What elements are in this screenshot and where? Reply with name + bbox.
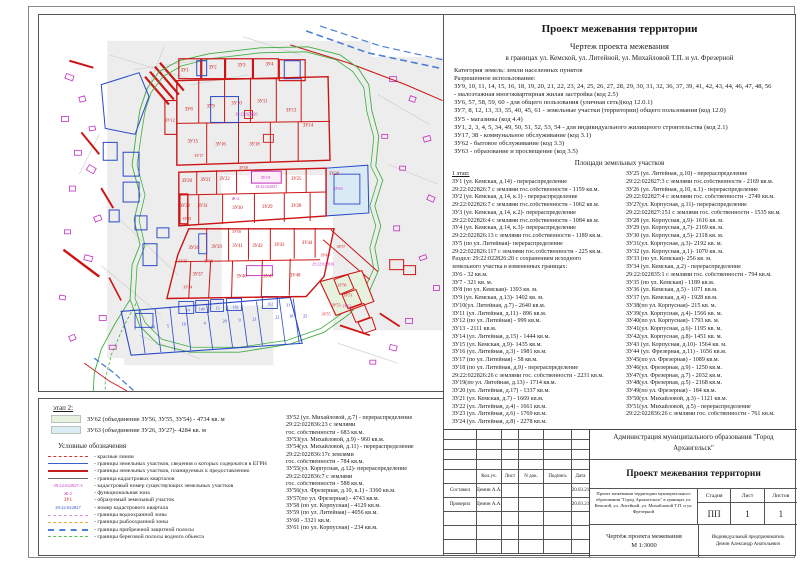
map-frame: ЗУ1ЗУ2ЗУ3ЗУ4ЗУ8ЗУ9ЗУ10ЗУ11ЗУ13ЗУ14ЗУ12ЗУ… xyxy=(38,14,444,392)
map-label: ЗУ51 xyxy=(343,293,352,298)
title-block-cell: Лист xyxy=(502,470,519,483)
legend-line-sample xyxy=(48,522,88,523)
title-block-cell xyxy=(502,484,519,497)
area-line: гос. собственности - 683 кв.м. xyxy=(286,430,442,437)
title-block-cell xyxy=(519,540,544,553)
legend-text-sample: 29:22:022827 xyxy=(55,505,81,510)
permitted-use-line: Разрешенное использование: xyxy=(454,75,789,83)
area-line: ЗУ61 (по ул. Корпусная) - 234 кв.м. xyxy=(286,525,442,532)
text-panel: Проект межевания территории Чертеж проек… xyxy=(443,14,796,556)
stage2-swatch xyxy=(51,426,81,434)
title-block-cell: Демин А.А. xyxy=(477,484,502,497)
title-block-cell xyxy=(544,430,572,439)
legend-label: - образуемый земельный участок xyxy=(94,497,174,503)
doc-title: Проект межевания территории xyxy=(444,23,795,35)
area-line: ЗУ10(ул. Литейная, д.7) - 2640 кв.м. xyxy=(452,303,622,311)
title-block-cell xyxy=(572,540,589,553)
sheet-value: 1 xyxy=(731,503,764,524)
project-title: Проект межевания территории xyxy=(590,460,797,489)
map-label: 16 xyxy=(182,321,186,326)
title-block-cell xyxy=(519,512,544,525)
area-line: ЗУ49(по ул. Фрезерная) - 184 кв.м. xyxy=(626,388,796,396)
stage1-label: 1 этап: xyxy=(452,171,622,179)
title-block-cell: Подпись xyxy=(544,470,572,483)
legend-sample xyxy=(46,478,90,479)
legend-row: 29:22:022827:3- кадастровый номер сущест… xyxy=(46,482,296,489)
area-line: ЗУ59 (по ул. Литейная) - 4056 кв.м. xyxy=(286,510,442,517)
legend-text-sample: 29:22:022827:3 xyxy=(53,483,82,488)
permitted-use-line: ЗУ9, 10, 11, 14, 15, 16, 18, 19, 20, 21,… xyxy=(454,83,789,91)
map-label: ЗУ20 xyxy=(182,179,193,184)
stage2-text: ЗУ63 (объединение ЗУ26, ЗУ27)- 4284 кв. … xyxy=(87,427,206,434)
map-label: ЗУ17 xyxy=(194,153,203,158)
map-drawing: ЗУ1ЗУ2ЗУ3ЗУ4ЗУ8ЗУ9ЗУ10ЗУ11ЗУ13ЗУ14ЗУ12ЗУ… xyxy=(39,15,443,391)
map-label: 18 xyxy=(289,313,293,318)
title-block-cell xyxy=(502,498,519,511)
area-line: ЗУ5 (по ул. Литейная)- перераспределение xyxy=(452,241,622,249)
stage2-label: этап 2: xyxy=(53,404,73,412)
map-label: 20 xyxy=(223,318,227,323)
area-line: ЗУ3 (ул. Кемская, д.14, к.2)- перераспре… xyxy=(452,210,622,218)
title-block-cell: N док. xyxy=(519,470,544,483)
map-label: ЗУ41 xyxy=(232,244,243,249)
map-label: ЗУ30 xyxy=(232,206,243,211)
title-block-cell xyxy=(502,526,519,539)
organization-name: Администрация муниципального образования… xyxy=(590,430,797,460)
legend-line-sample xyxy=(48,456,88,457)
area-line: 29:22:022827:3 с землями гос.собственнос… xyxy=(626,179,796,187)
title-block-cell xyxy=(544,526,572,539)
contractor-name: Демин Александр Анатольевич xyxy=(716,541,780,548)
sheets-label: Листов xyxy=(765,489,797,502)
title-block-cell xyxy=(444,450,477,459)
map-label: 29:22:022836 xyxy=(312,262,334,267)
area-line: гос. собственности - 588 кв.м. xyxy=(286,481,442,488)
area-line: ЗУ30 (ул. Корпусная, д.5)- 2118 кв. м. xyxy=(626,233,796,241)
area-line: ЗУ1 (ул. Кемская, д.14) - перераспределе… xyxy=(452,179,622,187)
map-label: ЗУ38 xyxy=(204,259,213,264)
title-block-cell xyxy=(544,460,572,469)
title-block-cell xyxy=(502,540,519,553)
area-line: ЗУ11 (ул. Литейная, д.11) - 896 кв.м. xyxy=(452,311,622,319)
map-label: ЗУ43 xyxy=(274,243,285,248)
title-block-cell: 20.03.21 xyxy=(572,498,589,511)
title-block-cell xyxy=(572,440,589,449)
title-block-cell: Дата xyxy=(572,470,589,483)
title-block-cell: 20.03.21 xyxy=(572,484,589,497)
legend-label: - номер кадастрового квартала xyxy=(94,505,168,511)
area-line: 29:22:022826:7 с землями гос.собственнос… xyxy=(452,202,622,210)
map-label: 25 xyxy=(303,313,307,318)
area-line: 29:22:022836:23 с землями xyxy=(286,422,442,429)
area-line: ЗУ53(ул. Михайловой, д.9) - 960 кв.м. xyxy=(286,437,442,444)
area-line: земельного участка в измененных границах… xyxy=(452,264,622,272)
legend-label: - кадастровый номер существующих земельн… xyxy=(94,483,233,489)
permitted-use-line: - малоэтажная многоквартирная жилая заст… xyxy=(454,91,789,99)
title-block-cell xyxy=(519,498,544,511)
legend-line-sample xyxy=(48,536,88,537)
legend-label: - границы рыбоохранной зоны xyxy=(94,519,168,525)
legend-label: - границы береговой полосы водного объек… xyxy=(94,534,204,540)
legend-line-sample xyxy=(48,529,88,531)
area-line: ЗУ9 (ул. Кемская, д.13)- 1402 кв. м. xyxy=(452,295,622,303)
title-block-cell xyxy=(572,460,589,469)
map-label: ЗУ46 xyxy=(236,275,247,280)
legend-sample: Ж-2 xyxy=(46,491,90,496)
stage-label: Стадия xyxy=(698,489,731,502)
contractor-type: Индивидуальный предприниматель xyxy=(712,534,785,541)
legend-sample xyxy=(46,456,90,457)
area-line: ЗУ54(ул. Михайловой, д.11) - перераспред… xyxy=(286,444,442,451)
drawing-name-cell: Чертёж проекта межевания М 1:3000 xyxy=(590,525,699,557)
title-block-cell xyxy=(444,460,477,469)
permitted-use-line: Категория земель: земли населенных пункт… xyxy=(454,67,789,75)
map-label: ЗУ39 xyxy=(211,245,222,250)
legend-sample xyxy=(46,536,90,537)
area-line: ЗУ12 (по ул. Литейная) - 999 кв.м. xyxy=(452,318,622,326)
map-label: ЗУ22 xyxy=(219,177,230,182)
permitted-use-line: ЗУ5 - магазины (код 4.4) xyxy=(454,116,789,124)
drawing-name: Чертёж проекта межевания xyxy=(606,532,682,541)
area-line: ЗУ23 (ул. Литейная, д.6) - 1769 кв.м. xyxy=(452,411,622,419)
map-label: ЗУ3 xyxy=(237,64,246,69)
title-block-cell xyxy=(572,450,589,459)
title-block-cell xyxy=(444,430,477,439)
legend-row: - граница кадастровых кварталов xyxy=(46,475,296,482)
area-line: ЗУ40(по ул. Корпусная)- 1793 кв. м. xyxy=(626,318,796,326)
map-label: ЗУ12 xyxy=(165,117,175,122)
title-block-cell xyxy=(444,540,477,553)
map-label: 162 xyxy=(268,302,274,306)
area-line: ЗУ24 (ул. Литейная, д.8) - 2278 кв.м. xyxy=(452,419,622,427)
title-block-cell xyxy=(444,470,477,483)
area-line: 29:22:022836:17с землями xyxy=(286,452,442,459)
legend-row: - границы прибрежной защитной полосы xyxy=(46,526,296,533)
permitted-use-line: ЗУ62 - бытовое обслуживание (код 3.3) xyxy=(454,140,789,148)
stage2-text: ЗУ62 (объединение ЗУ56, ЗУ55, ЗУ54) - 47… xyxy=(87,416,225,423)
map-label: ЗУ14 xyxy=(303,123,314,128)
legend-sample xyxy=(46,470,90,472)
map-label: ЗУ29 xyxy=(262,205,273,210)
map-label: ЗУ47 xyxy=(263,275,274,280)
legend-line-sample xyxy=(48,515,88,516)
map-label: ЗУ58 xyxy=(232,229,241,234)
map-label: 13 xyxy=(151,324,155,329)
area-line: 29:22:022826:13 с землями гос.собственно… xyxy=(452,233,622,241)
map-label: ЗУ18 xyxy=(249,142,260,147)
title-block-cell xyxy=(519,484,544,497)
legend-label: - границы земельных участков, сведения о… xyxy=(94,461,267,467)
area-line: ЗУ36 (ул. Кемская, д.5) - 1071 кв.м. xyxy=(626,287,796,295)
title-block-cell xyxy=(544,440,572,449)
map-label: ЗУ62 xyxy=(342,303,351,308)
map-label: ЗУ11 xyxy=(257,100,268,105)
legend-sample: 29:22:022827:3 xyxy=(46,483,90,488)
map-label: 3 xyxy=(134,325,136,330)
title-block-cell xyxy=(477,440,502,449)
title-block-cell xyxy=(544,450,572,459)
legend-row: - границы водоохранной зоны xyxy=(46,511,296,518)
area-line: ЗУ44 (ул. Фрезерная, д.11) - 1656 кв.м. xyxy=(626,349,796,357)
area-line: 29:22:022827:151 с землями гос. собствен… xyxy=(626,210,796,218)
map-label: 29:22:022826 xyxy=(235,111,257,116)
area-line: 29:22:022826:7 с землями гос.собственнос… xyxy=(452,187,622,195)
legend-label: - функциональная зона xyxy=(94,490,150,496)
map-label: ЗУ42 xyxy=(252,244,263,249)
title-block-cell xyxy=(444,512,477,525)
area-line: ЗУ17 (по ул. Литейная) - 58 кв.м. xyxy=(452,357,622,365)
title-block-cell xyxy=(477,460,502,469)
map-label: Ж-2 xyxy=(232,196,241,201)
area-line: ЗУ6 - 32 кв.м. xyxy=(452,272,622,280)
stage-value: ПП xyxy=(698,503,731,524)
title-block-right: Администрация муниципального образования… xyxy=(590,430,797,557)
area-line: ЗУ46(ул. Фрезерная, д.9) - 1250 кв.м. xyxy=(626,365,796,373)
map-label: ЗУ8 xyxy=(185,107,194,112)
legend-line-sample xyxy=(48,478,88,479)
legend-label: - границы водоохранной зоны xyxy=(94,512,167,518)
stage2-swatch xyxy=(51,415,81,423)
legend-label: - красные линии xyxy=(94,454,134,460)
legend-panel: этап 2: ЗУ62 (объединение ЗУ56, ЗУ55, ЗУ… xyxy=(38,398,444,556)
area-line: ЗУ28 (ул. Корпусная, д.9)- 1616 кв. м. xyxy=(626,218,796,226)
areas-heading: Площади земельных участков xyxy=(444,159,795,167)
area-line: 29:22:022826:4 с землями гос.собственнос… xyxy=(452,218,622,226)
title-block-cell xyxy=(502,440,519,449)
legend-sample: ЗУ1 xyxy=(46,498,90,503)
area-line: ЗУ47(ул. Фрезерная, д.7) - 2032 кв.м. xyxy=(626,373,796,381)
legend-row: - границы рыбоохранной зоны xyxy=(46,519,296,526)
area-line: ЗУ15 (ул. Кемская, д.9)- 1435 кв.м. xyxy=(452,342,622,350)
map-label: 5 xyxy=(167,323,169,328)
title-block-cell xyxy=(444,526,477,539)
map-label: 9 xyxy=(238,317,240,322)
drawing-sheet: ЗУ1ЗУ2ЗУ3ЗУ4ЗУ8ЗУ9ЗУ10ЗУ11ЗУ13ЗУ14ЗУ12ЗУ… xyxy=(0,0,800,565)
title-block-cell xyxy=(444,440,477,449)
map-label: ЗУ31 xyxy=(197,204,208,209)
areas-column-2: ЗУ25 (ул. Литейная, д.10) - перераспреде… xyxy=(626,171,796,419)
title-block: Кол.уч.ЛистN док.ПодписьДатаСоставилДеми… xyxy=(444,429,797,557)
area-line: 29:22:022826:117 с землями гос.собственн… xyxy=(452,249,622,257)
legend-row: ЗУ1- образуемый земельный участок xyxy=(46,497,296,504)
permitted-use-line: ЗУ7, 8, 12, 13, 33, 35, 40, 45, 61 - зем… xyxy=(454,107,789,115)
title-block-signature-table: Кол.уч.ЛистN док.ПодписьДатаСоставилДеми… xyxy=(444,430,590,557)
area-line: ЗУ20 (ул. Литейная, д.17) - 1337 кв.м. xyxy=(452,388,622,396)
title-block-cell xyxy=(572,512,589,525)
title-block-cell xyxy=(544,498,572,511)
title-block-cell xyxy=(502,512,519,525)
map-label: ЗУ34 xyxy=(183,285,193,290)
legend-label: - границы прибрежной защитной полосы xyxy=(94,527,194,533)
permitted-use-line: ЗУ63 - образование и просвещение (код 3.… xyxy=(454,148,789,156)
stage2-item: ЗУ63 (объединение ЗУ26, ЗУ27)- 4284 кв. … xyxy=(51,426,206,434)
title-block-cell xyxy=(519,450,544,459)
title-block-cell xyxy=(544,484,572,497)
area-line: ЗУ21 (ул. Кемская, д.7) - 1669 кв.м. xyxy=(452,396,622,404)
area-line: ЗУ60 - 3321 кв.м. xyxy=(286,518,442,525)
title-block-cell xyxy=(477,450,502,459)
map-label: ЗУ53 xyxy=(331,302,340,307)
area-line: ЗУ50(ул. Михайловой, д.3) - 1121 кв.м. xyxy=(626,396,796,404)
stage2-item: ЗУ62 (объединение ЗУ56, ЗУ55, ЗУ54) - 47… xyxy=(51,415,225,423)
area-line: ЗУ27(ул. Корпусная, д.11)- перераспредел… xyxy=(626,202,796,210)
title-block-cell xyxy=(477,512,502,525)
map-label: ЗУ2 xyxy=(209,66,218,71)
map-label: ЗУ55 xyxy=(322,311,331,316)
title-block-cell xyxy=(572,430,589,439)
map-label: 163 xyxy=(233,305,239,309)
area-line: ЗУ41(ул. Корпусная, д.6)- 1195 кв. м. xyxy=(626,326,796,334)
map-label: ЗУ59 xyxy=(239,165,248,170)
area-line: ЗУ55(ул. Корпусная, д.12)- перераспредел… xyxy=(286,466,442,473)
stage-table: Стадия Лист Листов ПП 1 1 xyxy=(698,489,797,524)
legend-title: Условные обозначения xyxy=(58,442,126,450)
map-label: ЗУ32 xyxy=(180,204,191,209)
permitted-use-line: ЗУ17, 38 - коммунальное обслуживание (ко… xyxy=(454,132,789,140)
title-block-cell: Проверил xyxy=(444,498,477,511)
area-line: ЗУ22 (ул. Литейная, д.4) - 1661 кв.м. xyxy=(452,404,622,412)
legend-row: - границы земельных участков, планируемы… xyxy=(46,468,296,475)
map-label: ЗУ21 xyxy=(200,178,211,183)
legend-text-sample: ЗУ1 xyxy=(64,498,72,503)
legend-sample xyxy=(46,463,90,464)
map-label: 13 xyxy=(216,306,220,310)
areas-column-3: ЗУ52 (ул. Михайловой, д.7) - перераспред… xyxy=(286,415,442,533)
title-block-cell xyxy=(519,440,544,449)
legend-sample xyxy=(46,522,90,523)
title-block-cell xyxy=(477,526,502,539)
title-block-cell xyxy=(519,430,544,439)
area-line: ЗУ52 (ул. Михайловой, д.7) - перераспред… xyxy=(286,415,442,422)
legend-list: - красные линии- границы земельных участ… xyxy=(46,453,296,541)
area-line: ЗУ51(ул. Михайловой, д.5) - перераспреде… xyxy=(626,404,796,412)
legend-row: Ж-2- функциональная зона xyxy=(46,489,296,496)
area-line: ЗУ29 (ул. Корпусная, д.7)- 2169 кв. м. xyxy=(626,225,796,233)
project-description: Проект межевания территории муниципально… xyxy=(590,489,698,524)
title-block-cell xyxy=(572,526,589,539)
legend-label: - границы земельных участков, планируемы… xyxy=(94,468,250,474)
title-block-cell: Составил xyxy=(444,484,477,497)
map-label: ЗУ19 xyxy=(261,175,271,180)
area-line: ЗУ35 (по ул. Кемская) - 1189 кв.м. xyxy=(626,280,796,288)
title-block-cell: Кол.уч. xyxy=(477,470,502,483)
area-line: ЗУ4 (ул. Кемская, д.14, к.3)- перераспре… xyxy=(452,225,622,233)
area-line: ЗУ39(ул. Корпусная, д.4)- 1566 кв. м. xyxy=(626,311,796,319)
area-line: ЗУ38(по ул. Корпусная)- 215 кв. м. xyxy=(626,303,796,311)
area-line: 29:22:022835:1 с землями гос. собственно… xyxy=(626,272,796,280)
map-label: ЗУ4 xyxy=(265,63,274,68)
map-label: ЗУ36 xyxy=(189,246,200,251)
area-line: ЗУ43 (ул. Корпусная, д.10)- 1564 кв. м. xyxy=(626,342,796,350)
area-line: 29:22:022826:26 с землями гос. собственн… xyxy=(452,373,622,381)
map-label: ЗУ10 xyxy=(231,102,242,107)
map-label: 31 xyxy=(286,302,290,307)
area-line: ЗУ32 (ул. Корпусная, д.1)- 1070 кв. м. xyxy=(626,249,796,257)
title-block-cell: Демин А.А. xyxy=(477,498,502,511)
area-line: ЗУ48(ул. Фрезерная, д.5) - 2168 кв.м. xyxy=(626,380,796,388)
title-block-cell xyxy=(519,526,544,539)
area-line: ЗУ13 - 2111 кв.м. xyxy=(452,326,622,334)
map-label: ЗУ1 xyxy=(181,69,190,74)
sheets-value: 1 xyxy=(765,503,797,524)
legend-row: - границы береговой полосы водного объек… xyxy=(46,533,296,540)
map-label: ЗУ63 xyxy=(333,186,343,191)
map-label: ЗУ44 xyxy=(302,241,313,246)
doc-subtitle: Чертеж проекта межевания xyxy=(444,41,795,51)
sheet-label: Лист xyxy=(731,489,764,502)
area-line: ЗУ42(ул. Корпусная, д.8)- 1451 кв. м. xyxy=(626,334,796,342)
map-label: ЗУ33 xyxy=(182,216,191,221)
title-block-cell xyxy=(477,540,502,553)
map-label: ЗУ35 xyxy=(178,259,187,264)
area-line: 29:22:022836:7 с землями xyxy=(286,474,442,481)
area-line: ЗУ14 (ул. Литейная, д.15) - 1444 кв.м. xyxy=(452,334,622,342)
map-label: ЗУ48 xyxy=(290,274,301,279)
legend-text-sample: Ж-2 xyxy=(64,491,72,496)
area-line: ЗУ58 (по ул. Корпусная) - 4129 кв.м. xyxy=(286,503,442,510)
area-line: ЗУ8 (по ул. Кемская)- 1393 кв. м. xyxy=(452,287,622,295)
title-block-cell xyxy=(477,430,502,439)
area-line: ЗУ16 (ул. Литейная, д.3) - 1981 кв.м. xyxy=(452,349,622,357)
drawing-scale: М 1:3000 xyxy=(631,541,656,550)
map-label: ЗУ50 xyxy=(337,283,346,288)
area-line: Раздел: 29:22:022826:20 с сохранением ис… xyxy=(452,256,622,264)
area-line: ЗУ25 (ул. Литейная, д.10) - перераспреде… xyxy=(626,171,796,179)
area-line: гос. собственности - 784 кв.м. xyxy=(286,459,442,466)
permitted-use-line: ЗУ6, 57, 58, 59, 60 - для общего пользов… xyxy=(454,99,789,107)
area-line: ЗУ33 (по ул. Кемская)- 256 кв. м. xyxy=(626,256,796,264)
map-label: 21 xyxy=(252,316,256,321)
legend-row: - красные линии xyxy=(46,453,296,460)
legend-row: - границы земельных участков, сведения о… xyxy=(46,460,296,467)
area-line: ЗУ2 (ул. Кемская, д.14, к.1) - перераспр… xyxy=(452,194,622,202)
legend-label: - граница кадастровых кварталов xyxy=(94,476,174,482)
area-line: ЗУ37 (ул. Кемская, д.4) - 1928 кв.м. xyxy=(626,295,796,303)
map-label: ЗУ37 xyxy=(193,273,204,278)
area-line: ЗУ7 - 321 кв. м. xyxy=(452,280,622,288)
map-label: ЗУ13 xyxy=(286,108,297,113)
map-label: ЗУ28 xyxy=(291,204,302,209)
area-line: ЗУ45(по ул. Фрезерная) - 1089 кв.м. xyxy=(626,357,796,365)
areas-column-1: 1 этап:ЗУ1 (ул. Кемская, д.14) - перерас… xyxy=(452,171,622,427)
area-line: ЗУ56(ул. Фрезерная, д.10, к.1) - 3360 кв… xyxy=(286,488,442,495)
permitted-use-line: ЗУ1, 2, 3, 4, 5, 34, 49, 50, 51, 52, 53,… xyxy=(454,124,789,132)
boundary-line: в границах ул. Кемской, ул. Литейной, ул… xyxy=(444,54,795,62)
map-label: ЗУ15 xyxy=(188,139,199,144)
legend-sample xyxy=(46,515,90,516)
contractor-cell: Индивидуальный предприниматель Демин Але… xyxy=(699,525,797,557)
map-label: 14 xyxy=(186,308,190,312)
permitted-use-block: Категория земель: земли населенных пункт… xyxy=(454,67,789,156)
map-label: ЗУ16 xyxy=(215,142,226,147)
title-block-cell xyxy=(502,450,519,459)
area-line: ЗУ18 (по ул. Литейная, д.9) - перераспре… xyxy=(452,365,622,373)
area-line: ЗУ26 (ул. Литейная, д.10, к.1) - перерас… xyxy=(626,187,796,195)
map-label: ЗУ57 xyxy=(337,244,346,249)
map-label: ЗУ45 xyxy=(321,253,330,258)
area-line: ЗУ34 (ул. Кемская, д.2) - перераспределе… xyxy=(626,264,796,272)
area-line: ЗУ19(по ул. Литейная, д.13) - 1714 кв.м. xyxy=(452,380,622,388)
title-block-cell xyxy=(502,460,519,469)
legend-sample xyxy=(46,529,90,531)
legend-sample: 29:22:022827 xyxy=(46,505,90,510)
area-line: ЗУ57(по ул. Фрезерная) - 4743 кв.м. xyxy=(286,496,442,503)
map-label: ЗУ26 xyxy=(329,172,340,177)
area-line: 29:22:022836:26 с землями гос. собственн… xyxy=(626,411,796,419)
legend-line-sample xyxy=(48,463,88,464)
title-block-cell xyxy=(544,540,572,553)
title-block-cell xyxy=(502,430,519,439)
